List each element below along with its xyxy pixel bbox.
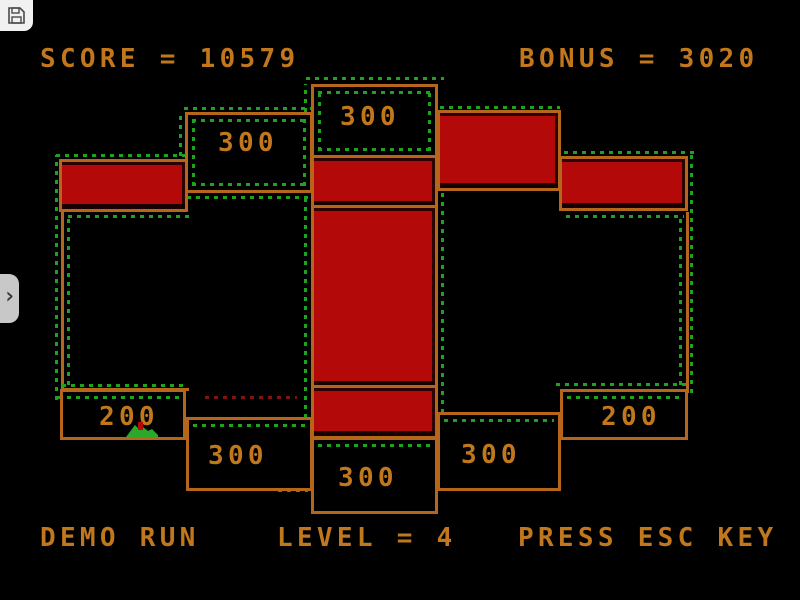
bonus-value-label: 300 [461,443,521,467]
red-block-center-lower [311,385,438,439]
green-dotted-line [55,155,58,400]
game-screen: › SCORE = 10579 BONUS = 3020 DEMO RUN LE… [0,0,800,600]
red-block-center-big [311,205,438,389]
red-block-right-bar [559,156,688,211]
bonus-box-left-bottom: 300 [186,417,313,491]
bonus-value-label: 200 [601,405,661,429]
red-block-right-top [437,110,561,191]
green-dotted-line [67,215,70,385]
orange-wall-line [686,212,689,393]
bonus-value-label: 300 [340,105,400,129]
green-dotted-line [690,153,693,393]
demo-run-label: DEMO RUN [40,525,200,551]
green-dotted-line [184,107,312,110]
green-dotted-line [187,196,313,199]
green-dotted-line [68,215,190,218]
bonus-value-label: 300 [338,466,398,490]
green-dotted-line [440,106,560,109]
drawer-handle[interactable]: › [0,274,19,323]
bonus-display: BONUS = 3020 [519,46,758,72]
bonus-box-left-top: 300 [185,112,313,193]
bonus-value-label: 300 [208,444,268,468]
dark-red-dotted-line [205,396,297,399]
floppy-disk-icon [7,6,26,25]
bonus-box-right-200: 200 [560,389,688,440]
green-dotted-line [306,77,444,80]
green-creature-sprite [126,422,158,437]
green-dotted-line [564,151,694,154]
green-dotted-line [566,215,684,218]
score-display: SCORE = 10579 [40,46,299,72]
green-dotted-line [56,154,188,157]
chevron-right-icon: › [3,286,16,308]
bonus-box-center-bottom: 300 [311,437,438,514]
red-block-left-bar [59,159,188,212]
bonus-box-left-200: 200 [60,389,186,440]
red-block-center-upper [311,155,438,209]
bonus-box-center-top: 300 [311,84,438,158]
green-dotted-line [679,215,682,385]
bonus-box-right-bottom: 300 [437,412,561,491]
green-dotted-line [62,384,188,387]
save-button[interactable] [0,0,33,31]
level-display: LEVEL = 4 [277,525,457,551]
green-dotted-line [556,383,688,386]
esc-hint-label: PRESS ESC KEY [518,525,777,551]
orange-wall-line [61,212,64,391]
bonus-value-label: 300 [218,131,278,155]
